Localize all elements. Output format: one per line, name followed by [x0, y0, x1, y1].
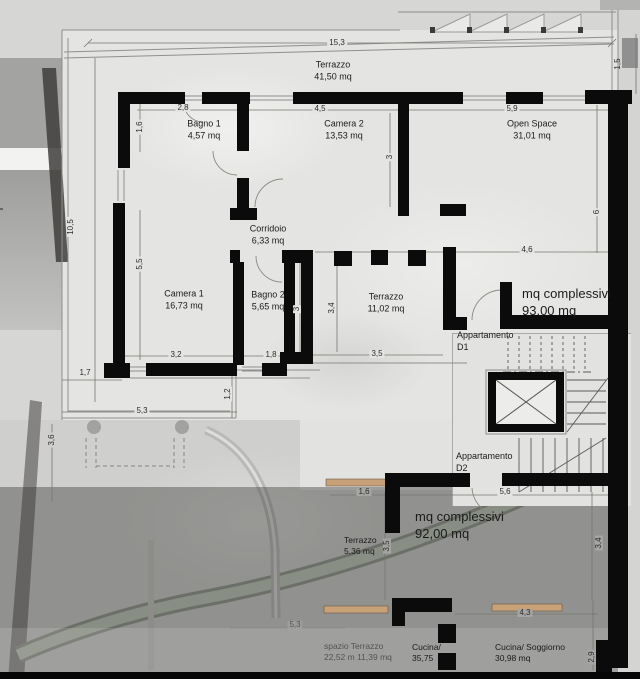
dimension-3-11: 3 [293, 305, 301, 313]
dimension-3_4-12: 3,4 [328, 300, 336, 315]
dimension-5_9-3: 5,9 [504, 105, 519, 113]
dimension-2_9-26: 2,9 [588, 649, 596, 664]
dimension-3_6-19: 3,6 [48, 432, 56, 447]
dimension-1_6-20: 1,6 [356, 488, 371, 496]
dimension-4_6-9: 4,6 [519, 246, 534, 254]
dimension-5_3-18: 5,3 [134, 407, 149, 415]
bottom-black-bar [0, 672, 640, 679]
dimension-5_6-21: 5,6 [497, 488, 512, 496]
dimension-3_5-22: 3,5 [383, 538, 391, 553]
dimension-3_4-23: 3,4 [595, 535, 603, 550]
dimension-3_2-14: 3,2 [168, 351, 183, 359]
dimension-2_8-1: 2,8 [175, 104, 190, 112]
dimension-1_6-5: 1,6 [136, 119, 144, 134]
site-plus-mark: + [0, 201, 4, 218]
dimension-15_3-0: 15,3 [327, 39, 347, 47]
dimension-1_5-4: 1,5 [614, 56, 622, 71]
dimension-5_3-24: 5,3 [287, 621, 302, 629]
dimension-labels-layer: 15,32,84,55,91,51,6310,55,54,6633,43,53,… [0, 0, 640, 679]
dimension-1_7-16: 1,7 [77, 369, 92, 377]
dimension-1_8-15: 1,8 [263, 351, 278, 359]
dimension-5_5-8: 5,5 [136, 256, 144, 271]
floor-plan-canvas: Terrazzo41,50 mqBagno 14,57 mqCamera 213… [0, 0, 640, 679]
dimension-4_3-25: 4,3 [517, 609, 532, 617]
dimension-6-10: 6 [593, 208, 601, 216]
dimension-10_5-7: 10,5 [67, 217, 75, 237]
dimension-4_5-2: 4,5 [312, 105, 327, 113]
dimension-1_2-17: 1,2 [224, 386, 232, 401]
dimension-3_5-13: 3,5 [369, 350, 384, 358]
dimension-3-6: 3 [386, 153, 394, 161]
